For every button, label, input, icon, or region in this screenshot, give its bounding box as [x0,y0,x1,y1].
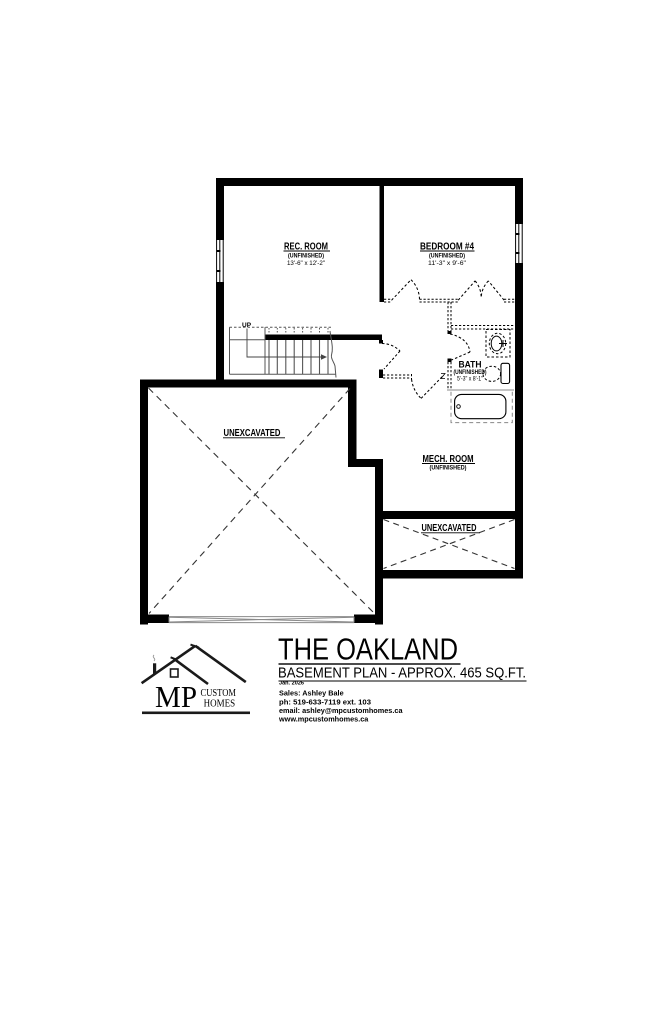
svg-text:(UNFINISHED): (UNFINISHED) [288,253,324,260]
svg-text:BATH: BATH [459,360,482,370]
svg-text:www.mpcustomhomes.ca: www.mpcustomhomes.ca [278,715,369,724]
svg-text:BASEMENT PLAN - APPROX. 465 SQ: BASEMENT PLAN - APPROX. 465 SQ.FT. [278,666,526,682]
svg-text:11'-3" x 9'-6": 11'-3" x 9'-6" [428,260,466,267]
svg-text:Sales: Ashley Bale: Sales: Ashley Bale [279,689,344,698]
svg-text:THE OAKLAND: THE OAKLAND [278,632,458,667]
svg-text:(UNFINISHED): (UNFINISHED) [429,253,465,260]
svg-text:5'-3" x 8'-1": 5'-3" x 8'-1" [457,376,483,383]
svg-text:ph: 519-633-7119 ext. 103: ph: 519-633-7119 ext. 103 [279,697,371,706]
svg-text:UP: UP [242,322,252,329]
svg-text:MP: MP [155,679,197,714]
svg-text:(UNFINISHED): (UNFINISHED) [430,465,467,472]
svg-text:email: ashley@mpcustomhomes.ca: email: ashley@mpcustomhomes.ca [279,706,403,715]
svg-text:Jan. 2026: Jan. 2026 [279,681,304,687]
svg-text:CUSTOM: CUSTOM [201,688,237,699]
svg-text:13'-6" x 12'-2": 13'-6" x 12'-2" [287,260,325,267]
svg-text:HOMES: HOMES [204,699,236,710]
